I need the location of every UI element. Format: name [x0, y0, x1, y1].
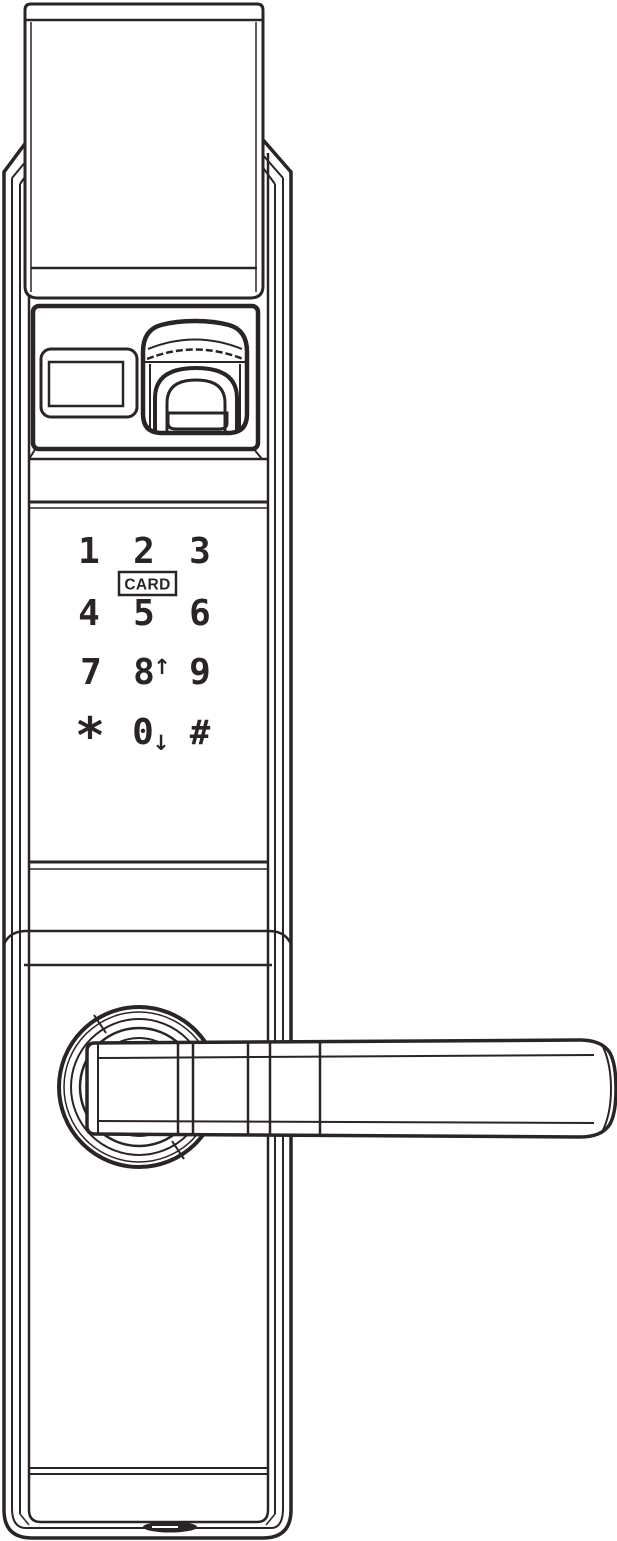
- key-3: 3: [189, 531, 211, 572]
- lock-drawing: 1 2 3 CARD 4 5 6 7 8 ↑ 9 * 0 ↓ #: [0, 0, 617, 1541]
- body-bottom: [143, 1522, 197, 1533]
- key-9: 9: [189, 652, 211, 693]
- key-5: 5: [133, 593, 155, 634]
- key-0: 0: [132, 712, 154, 753]
- key-6: 6: [189, 593, 211, 634]
- down-arrow-icon: ↓: [152, 731, 170, 755]
- card-label: CARD: [124, 577, 170, 594]
- up-arrow-icon: ↑: [153, 655, 171, 679]
- top-cap: [25, 4, 263, 298]
- key-8: 8: [133, 652, 155, 693]
- key-2: 2: [133, 531, 155, 572]
- top-cap-outline: [25, 4, 263, 298]
- key-4: 4: [78, 593, 100, 634]
- door-lock-technical-drawing: 1 2 3 CARD 4 5 6 7 8 ↑ 9 * 0 ↓ #: [0, 0, 617, 1541]
- key-star: *: [75, 707, 105, 765]
- key-1: 1: [78, 531, 100, 572]
- key-7: 7: [80, 652, 102, 693]
- handle-lever: [87, 1040, 616, 1137]
- key-hash: #: [190, 713, 211, 753]
